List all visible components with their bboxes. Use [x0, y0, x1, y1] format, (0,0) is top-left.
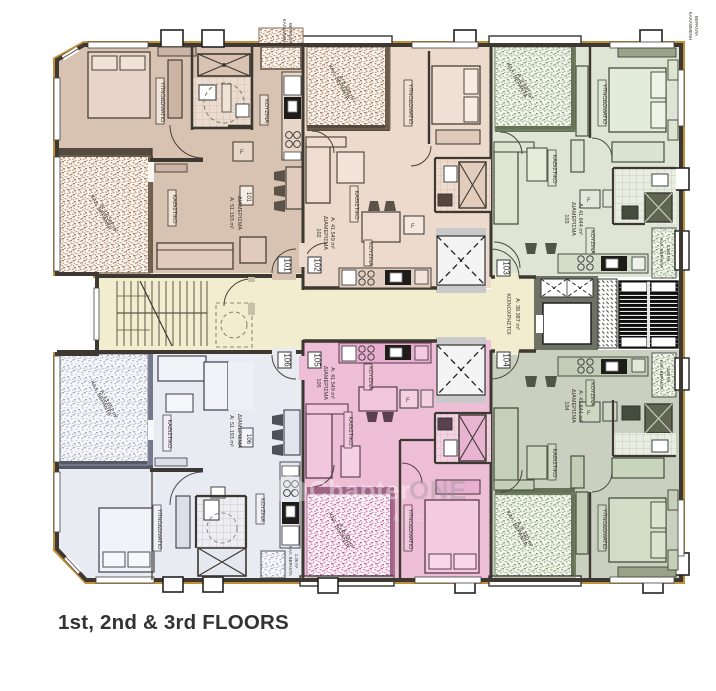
svg-text:ΚΟΥΖΙΝΑ: ΚΟΥΖΙΝΑ — [589, 382, 595, 406]
svg-text:104: 104 — [563, 401, 569, 410]
svg-text:102: 102 — [315, 228, 321, 237]
svg-text:ΚΑΛΥΜΜΕΝΗ: ΚΑΛΥΜΜΕΝΗ — [688, 12, 693, 41]
svg-text:106: 106 — [283, 353, 292, 367]
svg-text:101: 101 — [245, 192, 251, 203]
svg-text:ΔΙΑΜΕΡΙΣΜΑ: ΔΙΑΜΕΡΙΣΜΑ — [236, 414, 242, 448]
svg-text:ΚΑΛΥΜΜΕΝΗ: ΚΑΛΥΜΜΕΝΗ — [282, 19, 287, 48]
svg-text:102: 102 — [313, 258, 322, 272]
svg-text:ΒΕΡΑΝΤΑ: ΒΕΡΑΝΤΑ — [288, 23, 293, 43]
svg-text:105: 105 — [313, 353, 322, 367]
svg-text:F: F — [587, 198, 591, 204]
svg-text:1.36 m²: 1.36 m² — [294, 554, 299, 569]
svg-text:1.88 m²: 1.88 m² — [666, 368, 671, 383]
svg-text:Α: 41.644 m²: Α: 41.644 m² — [577, 390, 583, 422]
svg-text:Chapter: Chapter — [309, 475, 411, 505]
svg-text:ΚΟΥΖΙΝΑ: ΚΟΥΖΙΝΑ — [259, 498, 265, 522]
svg-text:ΚΑΛ. ΒΕΡΑΝΤΑ: ΚΑΛ. ΒΕΡΑΝΤΑ — [288, 546, 293, 576]
svg-text:103: 103 — [502, 261, 511, 275]
svg-text:ΚΟΥΖΙΝΑ: ΚΟΥΖΙΝΑ — [367, 366, 373, 390]
svg-text:ΚΑΛ. ΒΕΡΑΝΤΑ: ΚΑΛ. ΒΕΡΑΝΤΑ — [659, 238, 664, 268]
svg-text:ΚΑΘΙΣΤΙΚΟ: ΚΑΘΙΣΤΙΚΟ — [551, 154, 557, 184]
svg-text:106: 106 — [245, 434, 251, 445]
svg-text:ΒΕΡΑΝΤΑ: ΒΕΡΑΝΤΑ — [694, 16, 699, 36]
svg-text:Α: 41.549 m²: Α: 41.549 m² — [329, 367, 335, 399]
svg-text:F: F — [411, 224, 415, 230]
svg-text:104: 104 — [502, 353, 511, 367]
svg-text:ΚΑΘΙΣΤΙΚΟ: ΚΑΘΙΣΤΙΚΟ — [166, 419, 172, 449]
svg-text:ΔΙΑΜΕΡΙΣΜΑ: ΔΙΑΜΕΡΙΣΜΑ — [236, 196, 242, 230]
svg-text:F: F — [240, 150, 244, 156]
svg-text:ΚΑΛ. ΒΕΡΑΝΤΑ: ΚΑΛ. ΒΕΡΑΝΤΑ — [659, 360, 664, 390]
svg-text:ΚΟΥΖΙΝΑ: ΚΟΥΖΙΝΑ — [263, 99, 269, 123]
svg-text:ΚΑΘΙΣΤΙΚΟ: ΚΑΘΙΣΤΙΚΟ — [353, 190, 359, 220]
svg-text:F: F — [587, 411, 591, 417]
svg-text:ΚΟΙΝΟΧΡΗΣΤΟΙ: ΚΟΙΝΟΧΡΗΣΤΟΙ — [505, 293, 511, 335]
svg-text:ΥΠΝΟΔΩΜΑΤΙΟ: ΥΠΝΟΔΩΜΑΤΙΟ — [601, 84, 607, 125]
svg-text:ΥΠΝΟΔΩΜΑΤΙΟ: ΥΠΝΟΔΩΜΑΤΙΟ — [156, 509, 162, 550]
svg-text:Α: 38.387 m²: Α: 38.387 m² — [514, 298, 520, 330]
svg-text:ONE: ONE — [409, 475, 467, 505]
svg-text:105: 105 — [315, 378, 321, 387]
svg-text:ΚΟΥΖΙΝΑ: ΚΟΥΖΙΝΑ — [589, 230, 595, 254]
svg-text:103: 103 — [563, 214, 569, 223]
svg-text:ΚΑΘΙΣΤΙΚΟ: ΚΑΘΙΣΤΙΚΟ — [347, 416, 353, 446]
svg-text:ΔΙΑΜΕΡΙΣΜΑ: ΔΙΑΜΕΡΙΣΜΑ — [322, 216, 328, 250]
svg-text:Α: 51.193 m²: Α: 51.193 m² — [228, 197, 234, 229]
svg-text:101: 101 — [283, 258, 292, 272]
svg-text:ESTATES: ESTATES — [358, 513, 440, 523]
svg-text:Α: 41.644 m²: Α: 41.644 m² — [577, 203, 583, 235]
svg-text:ΚΟΥΖΙΝΑ: ΚΟΥΖΙΝΑ — [367, 242, 373, 266]
svg-text:ΔΙΑΜΕΡΙΣΜΑ: ΔΙΑΜΕΡΙΣΜΑ — [570, 202, 576, 236]
svg-text:ΥΠΝΟΔΩΜΑΤΙΟ: ΥΠΝΟΔΩΜΑΤΙΟ — [601, 509, 607, 550]
svg-text:Α: 41.549 m²: Α: 41.549 m² — [329, 217, 335, 249]
svg-text:ΚΑΘΙΣΤΙΚΟ: ΚΑΘΙΣΤΙΚΟ — [551, 448, 557, 478]
svg-text:1st, 2nd & 3rd FLOORS: 1st, 2nd & 3rd FLOORS — [58, 611, 289, 634]
svg-text:ΔΙΑΜΕΡΙΣΜΑ: ΔΙΑΜΕΡΙΣΜΑ — [322, 366, 328, 400]
svg-text:1.360 m²: 1.360 m² — [666, 245, 671, 262]
svg-text:F: F — [406, 398, 410, 404]
svg-text:Α: 51.193 m²: Α: 51.193 m² — [228, 415, 234, 447]
svg-text:ΔΙΑΜΕΡΙΣΜΑ: ΔΙΑΜΕΡΙΣΜΑ — [570, 389, 576, 423]
svg-text:ΚΑΘΙΣΤΙΚΟ: ΚΑΘΙΣΤΙΚΟ — [171, 194, 177, 224]
svg-text:ΥΠΝΟΔΩΜΑΤΙΟ: ΥΠΝΟΔΩΜΑΤΙΟ — [407, 84, 413, 125]
svg-text:ΥΠΝΟΔΩΜΑΤΙΟ: ΥΠΝΟΔΩΜΑΤΙΟ — [159, 82, 165, 123]
